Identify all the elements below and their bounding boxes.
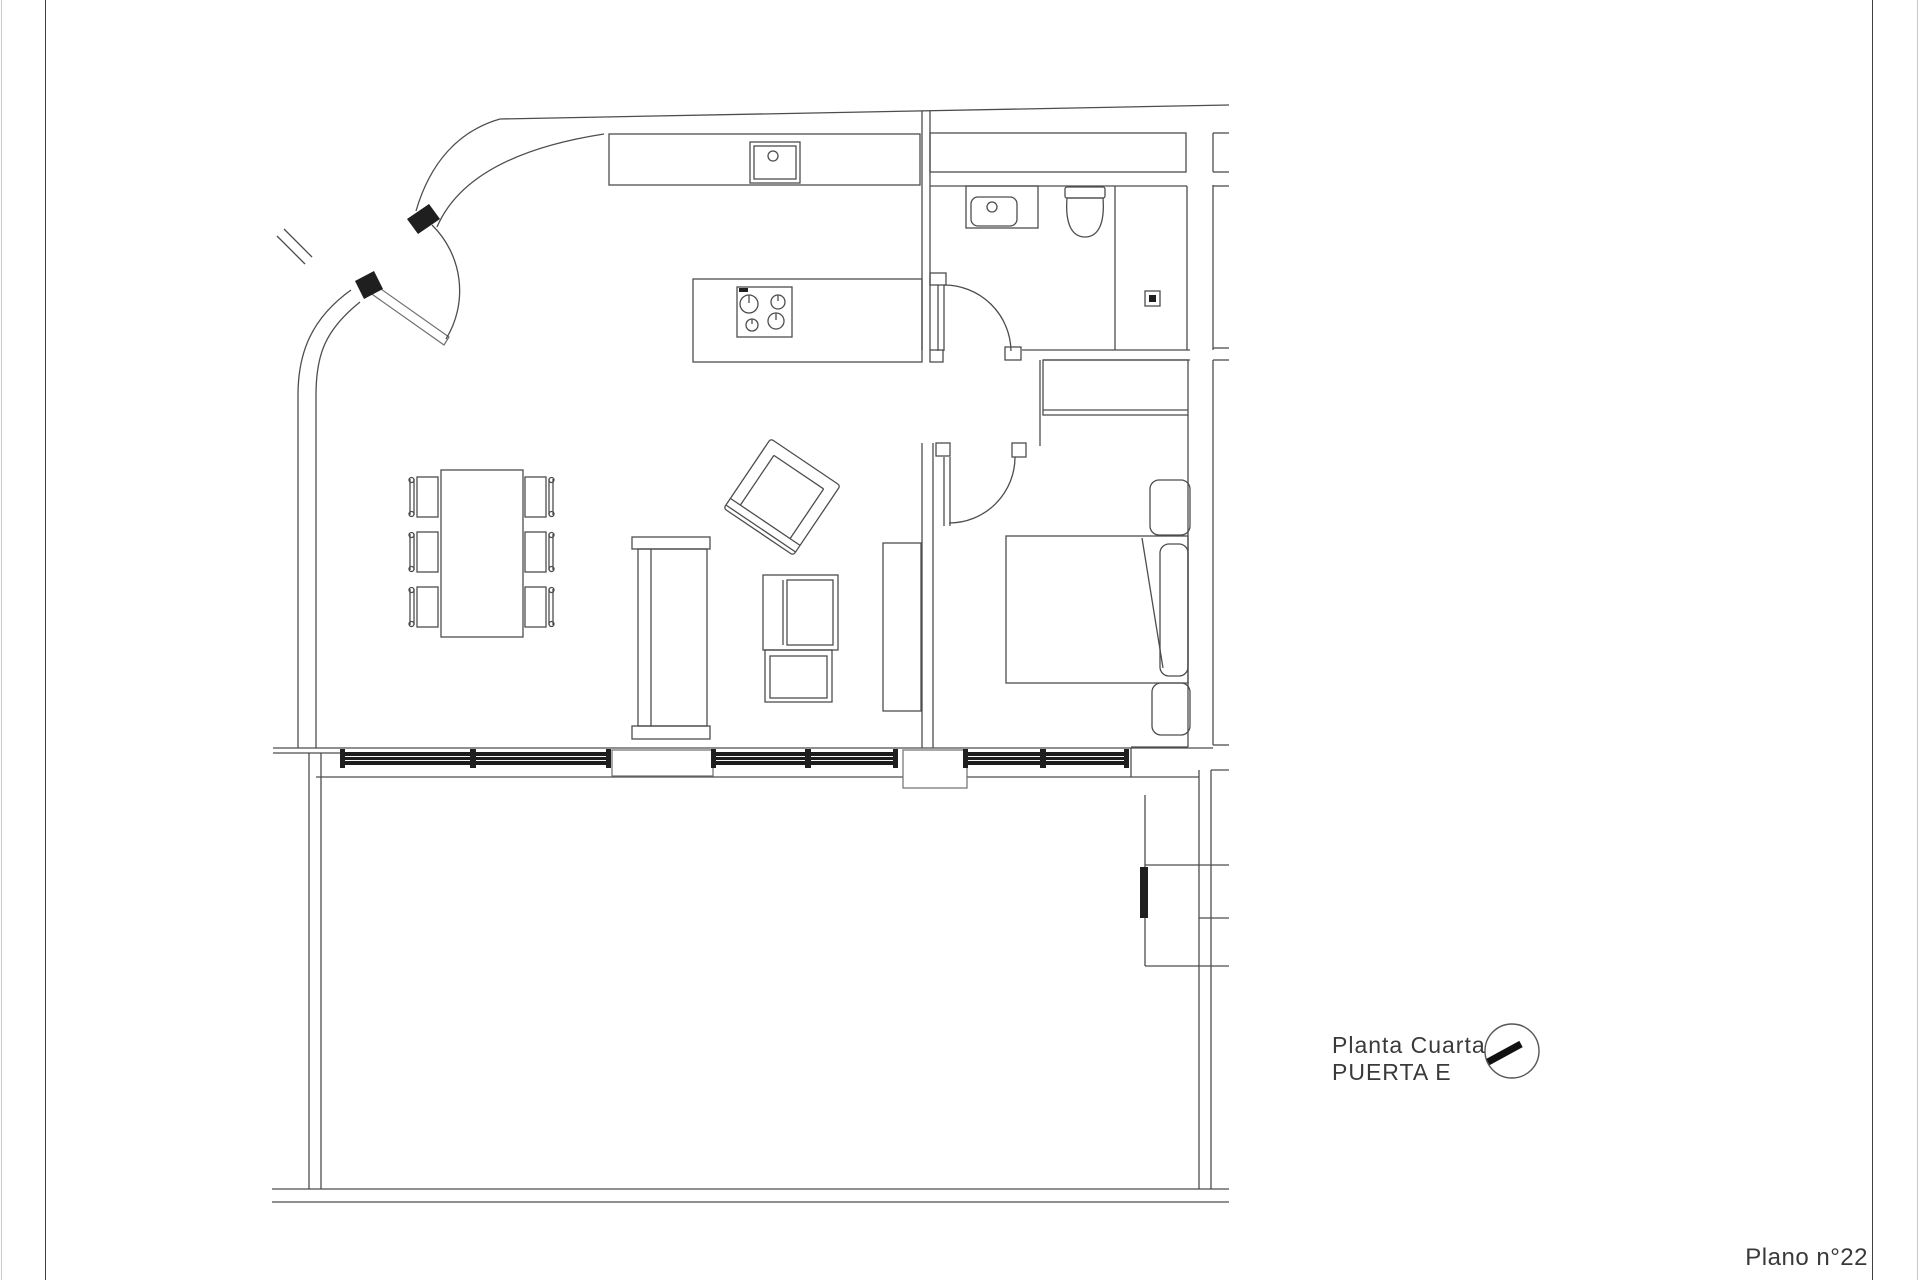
exterior-walls (272, 105, 1229, 1202)
bathroom-door (930, 273, 1021, 360)
entry-door-leaf (366, 282, 449, 345)
window-living-right (711, 749, 898, 768)
bedroom-door (936, 443, 1026, 526)
balcony-door-sill-right (903, 750, 967, 788)
floor-title-line2: PUERTA E (1332, 1059, 1486, 1086)
bathroom-top-cabinet (930, 133, 1186, 172)
nightstand-top (1150, 480, 1190, 535)
window-living-left (340, 749, 611, 768)
bedroom-door-swing-arc (949, 457, 1015, 523)
armchair (724, 439, 841, 556)
floor-title-line1: Planta Cuarta (1332, 1032, 1486, 1059)
floor-title: Planta Cuarta PUERTA E (1332, 1032, 1486, 1086)
storage-door (1140, 867, 1148, 918)
windows (340, 749, 1129, 768)
bathroom-faucet (987, 202, 997, 212)
balcony-door-sill-left (612, 750, 713, 776)
balcony-storage (1140, 795, 1229, 966)
nightstand-bottom (1152, 683, 1190, 735)
toilet-tank (1065, 187, 1105, 198)
bedroom-closet (1043, 360, 1188, 415)
kitchen-bathroom-wall (922, 111, 943, 362)
hall-bedroom-walls (922, 360, 1188, 777)
living-furniture (409, 439, 921, 739)
media-unit (763, 575, 838, 702)
bed (1006, 536, 1188, 683)
kitchen-sink (750, 142, 800, 183)
bathroom-vanity (966, 186, 1038, 228)
sheet-number: Plano n°22 (1745, 1244, 1868, 1272)
drawing-sheet: Planta Cuarta PUERTA E Plano n°22 (0, 0, 1920, 1280)
kitchen-island (693, 279, 922, 362)
sink-faucet (768, 151, 778, 161)
entry-door-jamb-top (407, 204, 440, 234)
window-bedroom (963, 749, 1129, 768)
shelf-unit (632, 537, 710, 739)
bathroom (930, 133, 1190, 360)
dining-chairs-left (409, 477, 438, 627)
sideboard (883, 543, 921, 711)
bedroom-furniture (1006, 480, 1190, 735)
kitchen (609, 134, 922, 362)
toilet-bowl (1067, 198, 1104, 237)
bathroom-door-swing-arc (944, 285, 1011, 351)
bed-pillow (1160, 544, 1188, 676)
floor-plan-drawing (0, 0, 1920, 1280)
entry-door-swing-arc (432, 225, 460, 339)
orientation-icon (1485, 1024, 1539, 1078)
cooktop-burners (740, 295, 785, 331)
dining-chairs-right (525, 477, 554, 627)
dining-table (441, 470, 523, 637)
